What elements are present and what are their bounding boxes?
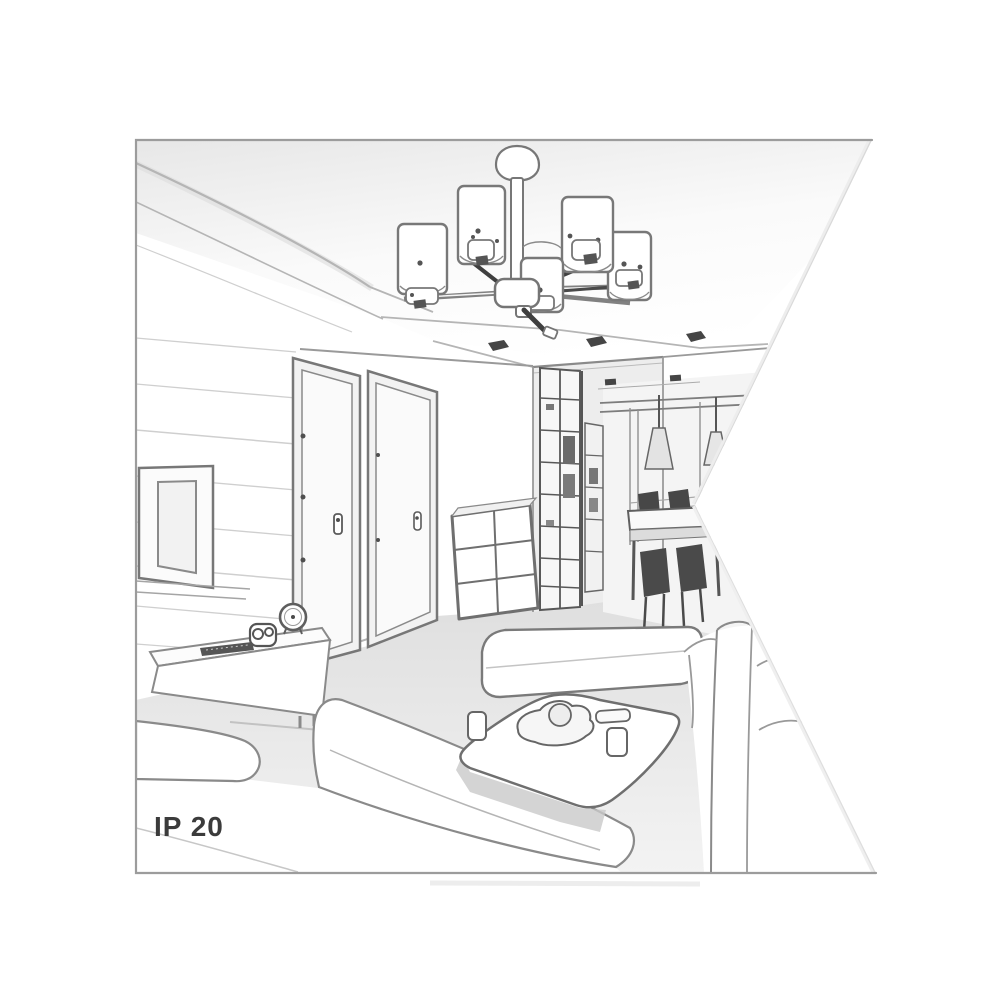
cup [468, 712, 486, 740]
drawer-chest [452, 498, 538, 619]
wardrobe-inset [563, 474, 575, 498]
wardrobe-handle [546, 520, 554, 526]
wardrobe-handle [546, 404, 554, 410]
door-right [368, 371, 437, 647]
lamp-shade [458, 186, 505, 266]
dish [596, 709, 631, 723]
hinge-icon [301, 434, 306, 439]
hinge-icon [376, 453, 380, 457]
hinge-icon [301, 558, 306, 563]
hub [495, 279, 539, 307]
drop-shadow [430, 883, 700, 884]
tv-screen [158, 481, 196, 573]
cup [607, 728, 627, 756]
scene [136, 140, 877, 874]
wardrobe-inset [589, 498, 598, 512]
canopy [496, 146, 539, 180]
spotlight-icon [605, 379, 616, 386]
hinge-icon [376, 538, 380, 542]
lamp-shade [562, 197, 613, 272]
room-drawing: IP 20 [0, 0, 1000, 1000]
bowl [549, 704, 571, 726]
hinge-icon [301, 495, 306, 500]
camera [250, 624, 276, 646]
sofa-right [684, 622, 877, 873]
wardrobe-inset [589, 468, 598, 484]
wardrobe-inset [563, 436, 575, 464]
door-handle [334, 514, 342, 534]
lamp-shade [608, 232, 651, 300]
spotlight-icon [670, 375, 681, 382]
tv [139, 466, 213, 588]
ip-rating-label: IP 20 [154, 811, 224, 842]
hallway [533, 348, 790, 650]
door-handle [414, 512, 421, 530]
product-illustration: IP 20 [0, 0, 1000, 1000]
